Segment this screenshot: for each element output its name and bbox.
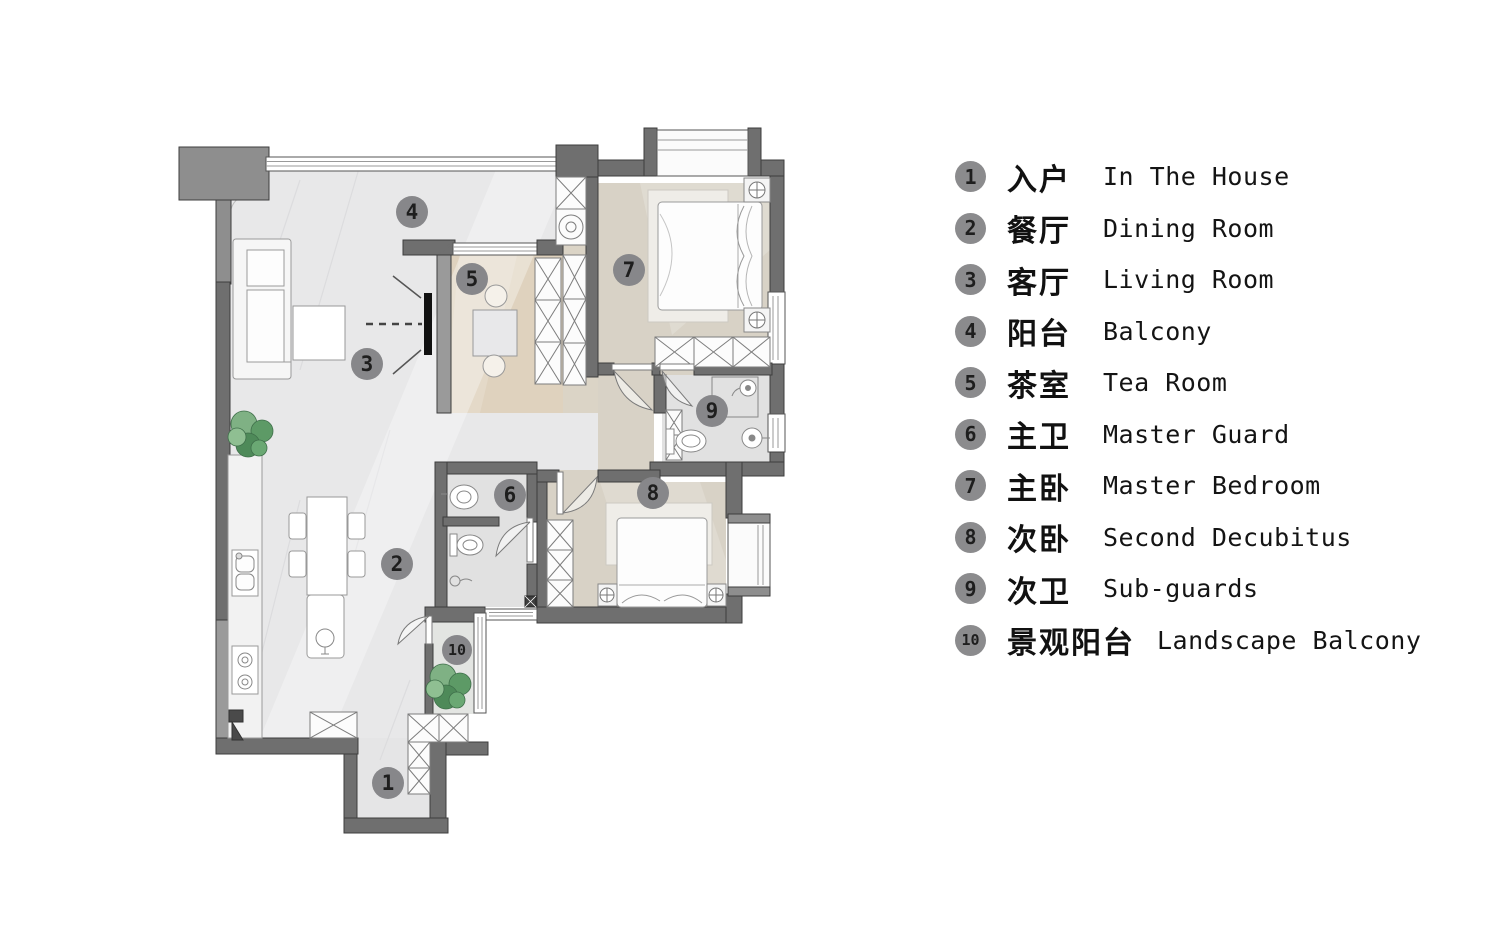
legend-label-zh: 客厅 — [1007, 258, 1081, 302]
legend-row: 7 主卧 Master Bedroom — [955, 460, 1421, 512]
room-marker-5: 5 — [456, 263, 488, 295]
legend-number: 3 — [955, 264, 986, 295]
kitchen-counter — [228, 455, 262, 740]
room-marker-4: 4 — [396, 196, 428, 228]
legend-row: 1 入户 In The House — [955, 151, 1421, 203]
balcony-window — [266, 157, 566, 171]
legend-number: 4 — [955, 316, 986, 347]
legend-label-zh: 餐厅 — [1007, 206, 1081, 250]
room-marker-7: 7 — [613, 254, 645, 286]
legend-number: 6 — [955, 419, 986, 450]
legend: 1 入户 In The House 2 餐厅 Dining Room 3 客厅 … — [955, 151, 1421, 666]
legend-row: 4 阳台 Balcony — [955, 306, 1421, 358]
floor-plan-page: 1 2 3 4 5 6 7 8 9 10 1 入户 In The House 2… — [0, 0, 1492, 933]
legend-label-zh: 次卫 — [1007, 567, 1081, 611]
room-marker-10: 10 — [442, 635, 472, 665]
second-bed — [598, 503, 726, 607]
legend-number: 10 — [955, 625, 986, 656]
legend-label-en: Dining Room — [1103, 214, 1274, 243]
legend-row: 5 茶室 Tea Room — [955, 357, 1421, 409]
legend-label-en: In The House — [1103, 162, 1290, 191]
legend-label-zh: 主卧 — [1007, 464, 1081, 508]
legend-label-zh: 茶室 — [1007, 361, 1081, 405]
toilet — [450, 534, 457, 556]
bath-window — [768, 414, 785, 452]
legend-label-zh: 入户 — [1007, 155, 1081, 199]
legend-row: 3 客厅 Living Room — [955, 254, 1421, 306]
legend-label-en: Living Room — [1103, 265, 1274, 294]
master-bay-window — [657, 130, 748, 176]
master-side-window — [768, 292, 785, 364]
coffee-table — [293, 306, 345, 360]
bath6-window — [485, 609, 537, 620]
legend-row: 2 餐厅 Dining Room — [955, 203, 1421, 255]
legend-row: 6 主卫 Master Guard — [955, 409, 1421, 461]
dining-table — [307, 497, 347, 595]
legend-number: 8 — [955, 522, 986, 553]
toilet — [666, 429, 674, 454]
kitchen-sink — [232, 550, 258, 596]
legend-label-zh: 阳台 — [1007, 309, 1081, 353]
legend-label-zh: 主卫 — [1007, 412, 1081, 456]
room-marker-8: 8 — [637, 477, 669, 509]
ac-platform — [179, 147, 269, 200]
room-marker-6: 6 — [494, 479, 526, 511]
legend-number: 2 — [955, 213, 986, 244]
legend-label-en: Second Decubitus — [1103, 523, 1352, 552]
legend-label-zh: 景观阳台 — [1007, 618, 1135, 662]
master-wardrobe — [655, 337, 770, 367]
legend-label-en: Landscape Balcony — [1157, 626, 1421, 655]
room-marker-2: 2 — [381, 548, 413, 580]
washer-cabinet — [556, 177, 586, 245]
second-wardrobe — [547, 520, 573, 607]
room-marker-1: 1 — [372, 767, 404, 799]
stove — [232, 646, 258, 694]
tea-window — [453, 243, 537, 255]
legend-number: 1 — [955, 161, 986, 192]
second-bay-window — [728, 514, 770, 596]
legend-label-en: Sub-guards — [1103, 574, 1259, 603]
master-bed — [648, 178, 770, 332]
room-marker-3: 3 — [351, 348, 383, 380]
legend-number: 5 — [955, 367, 986, 398]
legend-label-zh: 次卧 — [1007, 515, 1081, 559]
legend-label-en: Master Bedroom — [1103, 471, 1321, 500]
sideboard — [310, 712, 357, 738]
legend-row: 10 景观阳台 Landscape Balcony — [955, 615, 1421, 667]
legend-number: 7 — [955, 470, 986, 501]
legend-label-en: Tea Room — [1103, 368, 1227, 397]
room-marker-9: 9 — [696, 395, 728, 427]
legend-row: 9 次卫 Sub-guards — [955, 563, 1421, 615]
tea-cabinet — [535, 258, 561, 384]
balcony10-glass — [474, 613, 486, 713]
hall-wardrobe — [563, 255, 586, 385]
legend-label-en: Master Guard — [1103, 420, 1290, 449]
legend-row: 8 次卧 Second Decubitus — [955, 512, 1421, 564]
sofa — [233, 239, 291, 379]
legend-label-en: Balcony — [1103, 317, 1212, 346]
legend-number: 9 — [955, 573, 986, 604]
